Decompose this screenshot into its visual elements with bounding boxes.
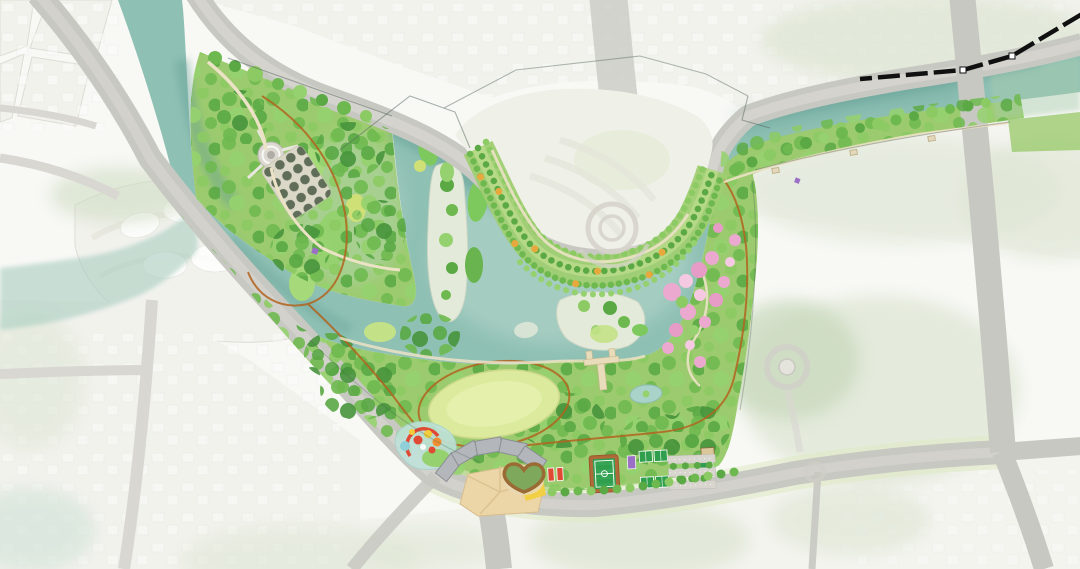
- bottomleft-horizontal-street: [0, 370, 150, 374]
- masterplan-map: [0, 0, 1080, 569]
- fork-east-road: [1002, 446, 1080, 452]
- inner-field-green: [574, 130, 670, 190]
- heart-garden: [504, 464, 544, 495]
